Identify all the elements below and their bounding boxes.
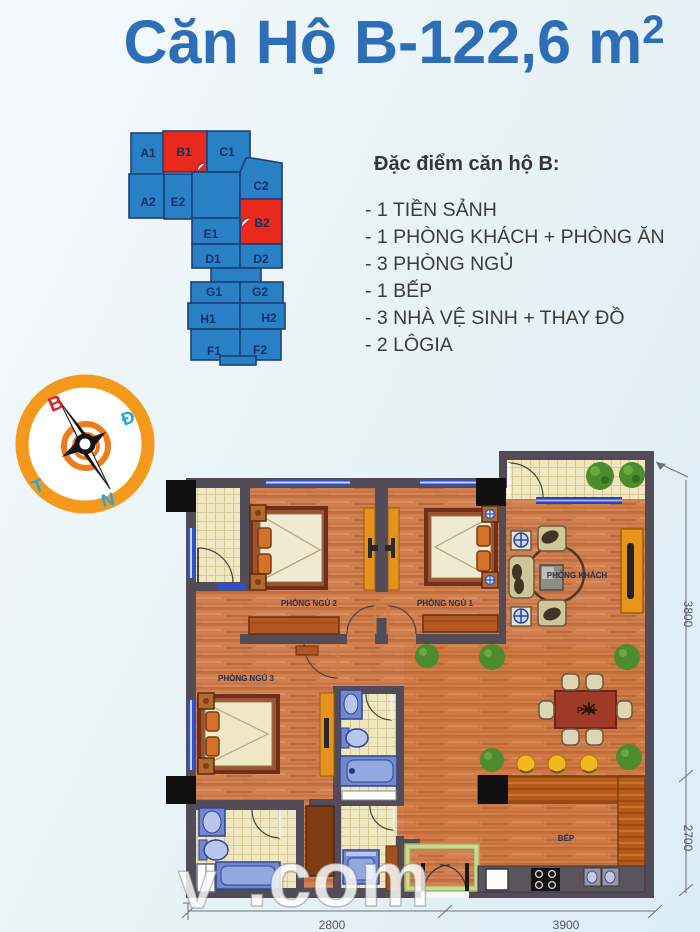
svg-text:3900: 3900 xyxy=(553,918,580,932)
svg-text:PHÒNG KHÁCH: PHÒNG KHÁCH xyxy=(547,571,608,580)
svg-text:2700: 2700 xyxy=(681,825,695,852)
svg-text:E1: E1 xyxy=(204,227,219,241)
svg-text:C1: C1 xyxy=(219,145,235,159)
svg-text:- 3 NHÀ VỆ SINH + THAY ĐỒ: - 3 NHÀ VỆ SINH + THAY ĐỒ xyxy=(365,305,625,329)
svg-text:BẾP: BẾP xyxy=(558,833,575,843)
svg-text:Đặc điểm căn hộ B:: Đặc điểm căn hộ B: xyxy=(374,153,560,175)
svg-text:G2: G2 xyxy=(252,285,268,299)
svg-text:B2: B2 xyxy=(254,216,270,230)
svg-text:v: v xyxy=(178,845,217,923)
svg-text:PHÒNG NGỦ 3: PHÒNG NGỦ 3 xyxy=(218,674,275,683)
svg-text:B1: B1 xyxy=(176,145,192,159)
svg-text:PHÒNG NGỦ 1: PHÒNG NGỦ 1 xyxy=(417,599,474,608)
svg-text:H2: H2 xyxy=(261,311,277,325)
svg-text:D1: D1 xyxy=(205,252,221,266)
svg-text:G1: G1 xyxy=(206,285,222,299)
svg-text:F2: F2 xyxy=(253,343,267,357)
svg-text:A2: A2 xyxy=(140,195,156,209)
svg-text:P.ĂN: P.ĂN xyxy=(577,706,595,715)
svg-text:Căn Hộ B-122,6 m2: Căn Hộ B-122,6 m2 xyxy=(124,8,665,76)
svg-text:C2: C2 xyxy=(253,179,269,193)
svg-text:E2: E2 xyxy=(171,195,186,209)
svg-text:- 1 BẾP: - 1 BẾP xyxy=(365,279,432,302)
svg-text:H1: H1 xyxy=(200,312,216,326)
svg-text:- 1 PHÒNG KHÁCH + PHÒNG ĂN: - 1 PHÒNG KHÁCH + PHÒNG ĂN xyxy=(365,225,665,248)
svg-text:- 2 LÔGIA: - 2 LÔGIA xyxy=(365,333,453,356)
svg-text:D2: D2 xyxy=(253,252,269,266)
svg-text:- 3 PHÒNG NGỦ: - 3 PHÒNG NGỦ xyxy=(365,251,513,275)
svg-text:PHÒNG NGỦ 2: PHÒNG NGỦ 2 xyxy=(281,599,338,608)
svg-text:- 1 TIỀN SẢNH: - 1 TIỀN SẢNH xyxy=(365,198,497,221)
svg-text:3800: 3800 xyxy=(681,601,695,628)
svg-text:F1: F1 xyxy=(207,344,221,358)
svg-text:.com: .com xyxy=(246,834,430,923)
svg-text:A1: A1 xyxy=(140,146,156,160)
